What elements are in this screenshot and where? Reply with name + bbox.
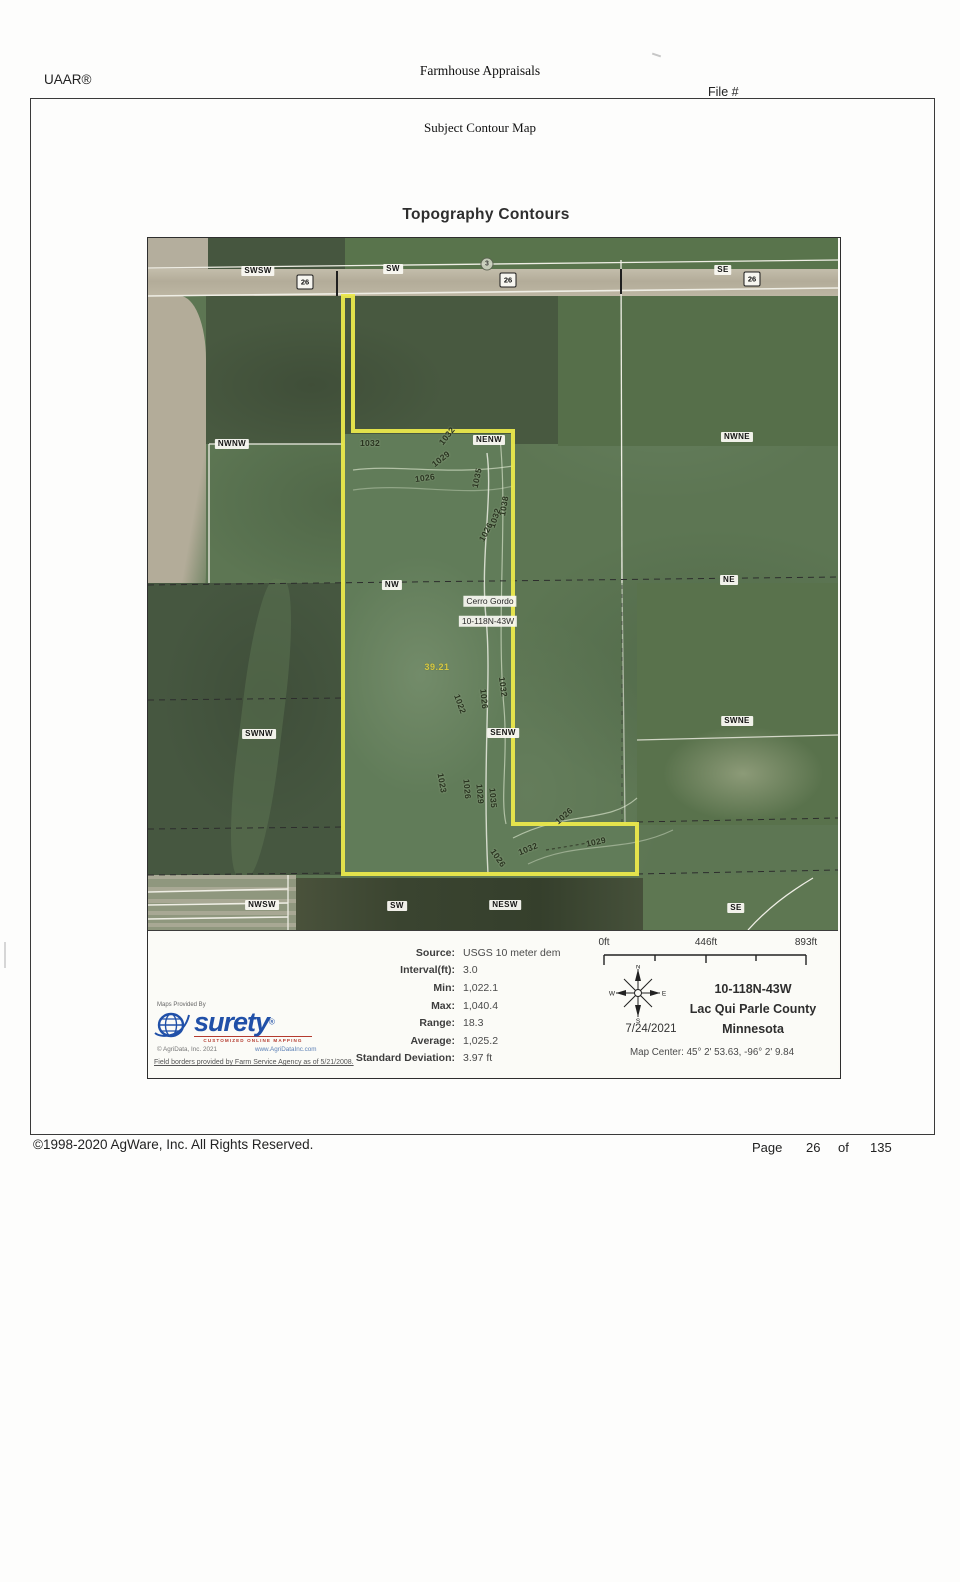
- county-name: Lac Qui Parle County: [668, 999, 838, 1019]
- compass-n: N: [636, 965, 641, 971]
- stat-value: 1,040.4: [463, 1000, 498, 1012]
- agridata-copyright: © AgriData, Inc. 2021: [157, 1046, 217, 1053]
- scale-bar: 0ft 446ft 893ft: [596, 933, 822, 969]
- map-legend: Source:USGS 10 meter demInterval(ft):3.0…: [148, 931, 838, 1076]
- aliquot-label: SE: [714, 265, 731, 275]
- aliquot-label: SW: [387, 901, 407, 911]
- township-range: 10-118N-43W: [668, 979, 838, 999]
- map-frame: SWSWSWSENWNWNENWNWNENWNESWNWSENWSWNENWSW…: [147, 237, 841, 1079]
- route-3-marker: 3: [481, 258, 494, 271]
- aliquot-label: SW: [383, 264, 403, 274]
- aliquot-label: NW: [382, 580, 402, 590]
- stat-value: 3.0: [463, 964, 478, 976]
- stat-label: Min:: [178, 982, 455, 994]
- scan-mark: [4, 942, 6, 968]
- highway-26-shield: 26: [297, 275, 314, 290]
- aliquot-label: NWNE: [721, 432, 753, 442]
- stat-value: USGS 10 meter dem: [463, 947, 560, 959]
- stat-value: 18.3: [463, 1017, 483, 1029]
- surety-registered-mark: ®: [269, 1018, 275, 1027]
- stat-row: Min:1,022.1: [178, 979, 560, 997]
- file-number-label: File #: [708, 85, 739, 99]
- page-of-label: of: [838, 1140, 849, 1155]
- aliquot-label: SE: [727, 903, 744, 913]
- appraisal-page: UAAR® Farmhouse Appraisals File # Subjec…: [0, 0, 960, 1582]
- surety-wordmark-wrap: surety® CUSTOMIZED ONLINE MAPPING: [194, 1009, 312, 1043]
- stat-row: Interval(ft):3.0: [178, 962, 560, 980]
- township-name-label: Cerro Gordo: [463, 596, 516, 607]
- contour-elevation-label: 1029: [475, 784, 485, 805]
- agridata-website: www.AgriDataInc.com: [255, 1046, 317, 1053]
- aerial-contour-map: SWSWSWSENWNWNENWNWNENWNESWNWSENWSWNENWSW…: [148, 238, 838, 931]
- agware-copyright: ©1998-2020 AgWare, Inc. All Rights Reser…: [33, 1137, 313, 1152]
- contour-elevation-label: 1023: [436, 772, 448, 793]
- scale-tick-0: 0ft: [598, 937, 609, 948]
- surety-wordmark: surety: [194, 1007, 269, 1037]
- aliquot-label: SWNW: [242, 729, 276, 739]
- surety-provider-block: Maps Provided By surety® CUSTOMIZED ONLI…: [154, 1002, 424, 1066]
- township-range-label: 10-118N-43W: [459, 616, 517, 627]
- highway-26-shield: 26: [500, 273, 517, 288]
- scale-tick-end: 893ft: [795, 937, 817, 948]
- aliquot-label: NWSW: [245, 900, 279, 910]
- aliquot-label: NWNW: [215, 439, 249, 449]
- aliquot-label: NENW: [473, 435, 505, 445]
- compass-e: E: [662, 991, 667, 998]
- page-total: 135: [870, 1140, 892, 1155]
- stat-value: 3.97 ft: [463, 1052, 492, 1064]
- stat-value: 1,025.2: [463, 1035, 498, 1047]
- compass-w: W: [609, 991, 616, 998]
- contour-elevation-label: 1026: [462, 779, 472, 800]
- surety-tagline: CUSTOMIZED ONLINE MAPPING: [194, 1036, 312, 1043]
- contour-elevation-label: 1032: [360, 439, 380, 448]
- stat-label: Source:: [178, 947, 455, 959]
- page-number: 26: [806, 1140, 820, 1155]
- map-center-coordinates: Map Center: 45° 2' 53.63, -96° 2' 9.84: [586, 1047, 838, 1058]
- surety-globe-icon: [154, 1009, 190, 1039]
- stat-row: Source:USGS 10 meter dem: [178, 944, 560, 962]
- aliquot-label: NE: [720, 575, 738, 585]
- stat-value: 1,022.1: [463, 982, 498, 994]
- contour-elevation-label: 1035: [488, 788, 498, 809]
- compass-rose: N E S W: [608, 965, 668, 1023]
- scale-tick-mid: 446ft: [695, 937, 717, 948]
- company-name: Farmhouse Appraisals: [0, 63, 960, 79]
- parcel-acreage-label: 39.21: [424, 662, 449, 672]
- aliquot-label: NESW: [489, 900, 521, 910]
- stat-label: Interval(ft):: [178, 964, 455, 976]
- section-title: Subject Contour Map: [0, 120, 960, 136]
- aliquot-label: SENW: [487, 728, 519, 738]
- map-heading: Topography Contours: [0, 206, 960, 224]
- page-label: Page: [752, 1140, 782, 1155]
- location-block: 10-118N-43W Lac Qui Parle County Minneso…: [668, 979, 838, 1039]
- contour-elevation-label: 1026: [479, 689, 490, 710]
- aliquot-label: SWNE: [721, 716, 753, 726]
- scan-speck: [652, 53, 661, 58]
- surety-logo: surety® CUSTOMIZED ONLINE MAPPING: [154, 1009, 424, 1043]
- field-borders-note: Field borders provided by Farm Service A…: [154, 1059, 424, 1066]
- state-name: Minnesota: [668, 1019, 838, 1039]
- aliquot-label: SWSW: [241, 266, 274, 276]
- provider-copyright-row: © AgriData, Inc. 2021 www.AgriDataInc.co…: [157, 1046, 424, 1053]
- contour-elevation-label: 1032: [497, 676, 508, 697]
- highway-26-shield: 26: [744, 272, 761, 287]
